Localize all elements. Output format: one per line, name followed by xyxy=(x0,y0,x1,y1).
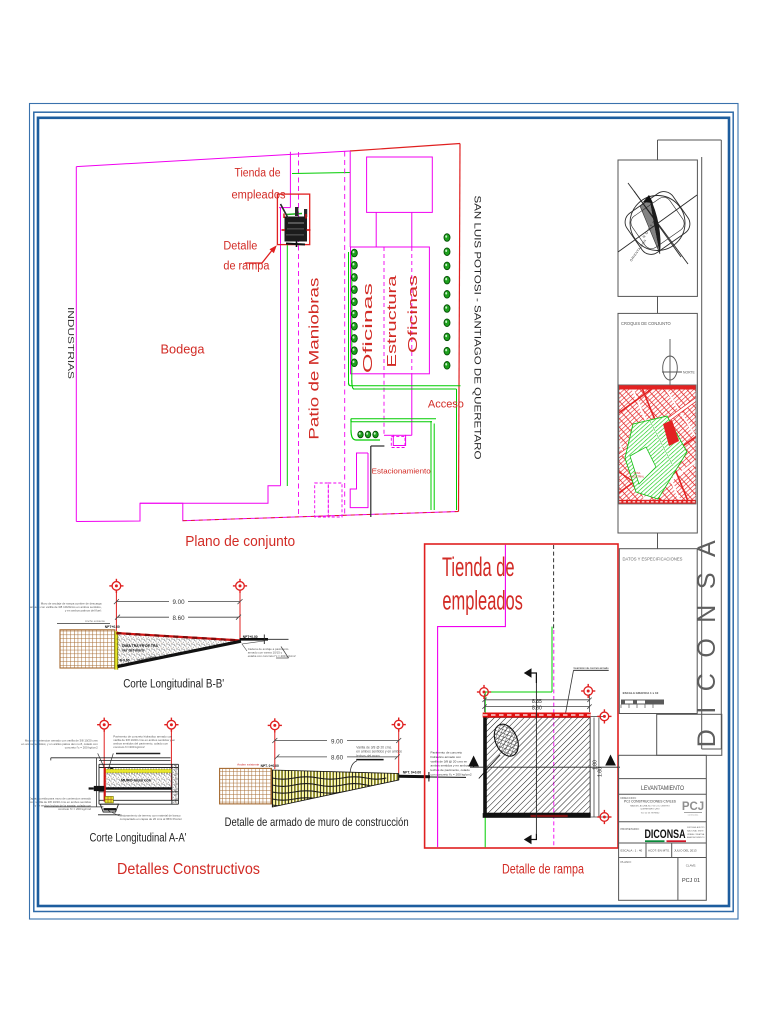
svg-text:8.85: 8.85 xyxy=(532,699,542,705)
svg-text:Corte Longitudinal A-A': Corte Longitudinal A-A' xyxy=(90,833,187,845)
svg-text:PCJ 01: PCJ 01 xyxy=(682,878,700,884)
svg-text:Acceso: Acceso xyxy=(428,399,464,411)
svg-text:JULIO DEL 2013: JULIO DEL 2013 xyxy=(674,849,697,853)
svg-text:LEVANTAMIENTO: LEVANTAMIENTO xyxy=(641,785,684,792)
svg-text:9.00: 9.00 xyxy=(172,599,185,606)
svg-text:9.00: 9.00 xyxy=(331,738,344,745)
svg-text:Ancho existente: Ancho existente xyxy=(85,619,105,623)
svg-text:ambos sentidos y en ambos: ambos sentidos y en ambos xyxy=(431,764,470,768)
svg-text:de rampa: de rampa xyxy=(223,261,270,273)
svg-text:URBAN CREATIVA: URBAN CREATIVA xyxy=(687,833,705,836)
svg-text:Detalle: Detalle xyxy=(223,240,257,252)
svg-text:Tel. 01 55 7979852: Tel. 01 55 7979852 xyxy=(641,813,660,815)
svg-text:Detalle de armado de muro de c: Detalle de armado de muro de construcció… xyxy=(225,815,409,829)
svg-text:varilla de 3/8 @ 20 cms en: varilla de 3/8 @ 20 cms en xyxy=(431,759,468,763)
svg-text:Plano de conjunto: Plano de conjunto xyxy=(185,533,295,550)
svg-text:concreto f'c = 200 kg/cm2: concreto f'c = 200 kg/cm2 xyxy=(58,807,91,811)
svg-text:Muro de contencion en esta zon: Muro de contencion en esta zona xyxy=(173,764,177,803)
svg-text:Estacionamiento: Estacionamiento xyxy=(372,467,431,476)
svg-text:Anden existente: Anden existente xyxy=(237,762,259,766)
svg-text:Corte Longitudinal B-B': Corte Longitudinal B-B' xyxy=(123,679,224,691)
svg-text:PCJ: PCJ xyxy=(682,801,704,813)
svg-text:DIMA TRA FR DE TRA: DIMA TRA FR DE TRA xyxy=(122,643,158,648)
svg-text:MANUEL ACUNA No 715 COL CENTRO: MANUEL ACUNA No 715 COL CENTRO xyxy=(630,805,670,808)
svg-text:PCJ CONSTRUCCIONES CIVILES: PCJ CONSTRUCCIONES CIVILES xyxy=(624,800,677,804)
svg-text:8.60: 8.60 xyxy=(331,755,344,762)
svg-text:compactado en capas de 20 cms: compactado en capas de 20 cms al 95% Pro… xyxy=(120,817,182,821)
svg-text:INDUSTRIAL: INDUSTRIAL xyxy=(630,476,645,479)
svg-text:NPT+0.00: NPT+0.00 xyxy=(243,635,258,639)
svg-text:empleados: empleados xyxy=(442,586,523,616)
svg-text:concreto f'c=200 kg/cm2: concreto f'c=200 kg/cm2 xyxy=(113,745,145,749)
svg-text:PROPIETARIO:: PROPIETARIO: xyxy=(621,827,640,831)
svg-text:constructora: constructora xyxy=(688,814,699,817)
svg-text:CLAVE:: CLAVE: xyxy=(686,864,697,868)
svg-text:NACIONAL SNITE: NACIONAL SNITE xyxy=(687,829,704,832)
svg-text:estaba con concreto f'c = 200: estaba con concreto f'c = 200 kg/cm2 xyxy=(248,654,296,658)
svg-text:con concreto f'c = 200 kg/cm2: con concreto f'c = 200 kg/cm2 xyxy=(431,773,472,777)
svg-text:Detalles Constructivos: Detalles Constructivos xyxy=(117,861,260,878)
svg-text:Guarnicion de concreto armado: Guarnicion de concreto armado xyxy=(574,666,609,670)
svg-text:ver del muro: ver del muro xyxy=(122,649,144,653)
svg-text:N-0.60: N-0.60 xyxy=(120,658,130,662)
svg-text:DATOS Y ESPECIFICACIONES: DATOS Y ESPECIFICACIONES xyxy=(623,557,683,562)
svg-text:empleados: empleados xyxy=(232,190,286,202)
svg-text:NPT. 0+0.00: NPT. 0+0.00 xyxy=(261,764,279,768)
svg-text:Bodega: Bodega xyxy=(161,343,205,357)
svg-text:Oficinas: Oficinas xyxy=(361,283,375,373)
svg-text:Detalle de rampa: Detalle de rampa xyxy=(502,862,584,877)
svg-text:DICONSA: DICONSA xyxy=(645,829,686,841)
svg-text:8.60: 8.60 xyxy=(532,706,542,712)
svg-text:SISTEMA. AUDITO: SISTEMA. AUDITO xyxy=(687,826,705,829)
svg-text:hidraulico armado con: hidraulico armado con xyxy=(431,755,462,759)
svg-text:lechos de pavimento, colado: lechos de pavimento, colado xyxy=(431,768,470,772)
svg-text:Patio de Maniobras: Patio de Maniobras xyxy=(306,277,321,439)
svg-text:NORTE: NORTE xyxy=(683,371,696,375)
svg-text:NPT. 0+0.00: NPT. 0+0.00 xyxy=(403,770,421,774)
svg-text:ESCALA GRAFICA: ESCALA GRAFICA xyxy=(623,691,651,695)
svg-text:INDUSTRIAS: INDUSTRIAS xyxy=(66,307,76,379)
svg-text:Oficinas: Oficinas xyxy=(406,275,420,353)
svg-text:DICONSA: DICONSA xyxy=(693,525,721,747)
svg-text:SAN LUIS POTOSI - SANTIAGO DE: SAN LUIS POTOSI - SANTIAGO DE QUERETARO xyxy=(473,196,483,460)
svg-text:ACOT: EN MTS.: ACOT: EN MTS. xyxy=(648,849,670,853)
svg-text:1 x 10: 1 x 10 xyxy=(650,691,659,695)
svg-text:Tienda de: Tienda de xyxy=(235,168,281,180)
svg-text:1.60: 1.60 xyxy=(598,767,604,777)
svg-text:PLANO:: PLANO: xyxy=(621,860,632,864)
svg-text:Tienda de: Tienda de xyxy=(442,552,515,582)
svg-text:CROQUIS DE CONJUNTO: CROQUIS DE CONJUNTO xyxy=(621,321,671,326)
svg-text:Estructura: Estructura xyxy=(385,275,399,367)
svg-text:ESCALA : 1 : 40: ESCALA : 1 : 40 xyxy=(621,849,643,853)
svg-text:QUERETARO QRO: QUERETARO QRO xyxy=(640,807,660,810)
svg-text:ABASTACIMIENTO: ABASTACIMIENTO xyxy=(687,836,705,839)
svg-text:MURO-muro con: MURO-muro con xyxy=(121,779,151,783)
svg-text:8.60: 8.60 xyxy=(172,615,185,622)
svg-text:lechos del muro: lechos del muro xyxy=(356,754,379,758)
svg-text:Pavimento de concreto: Pavimento de concreto xyxy=(431,751,463,755)
svg-text:NPT+0.00: NPT+0.00 xyxy=(105,625,120,629)
svg-text:y en ambos palmos del fluel:: y en ambos palmos del fluel: xyxy=(65,608,102,612)
svg-text:concreto f'c = 200 kg/cm2: concreto f'c = 200 kg/cm2 xyxy=(65,746,98,750)
